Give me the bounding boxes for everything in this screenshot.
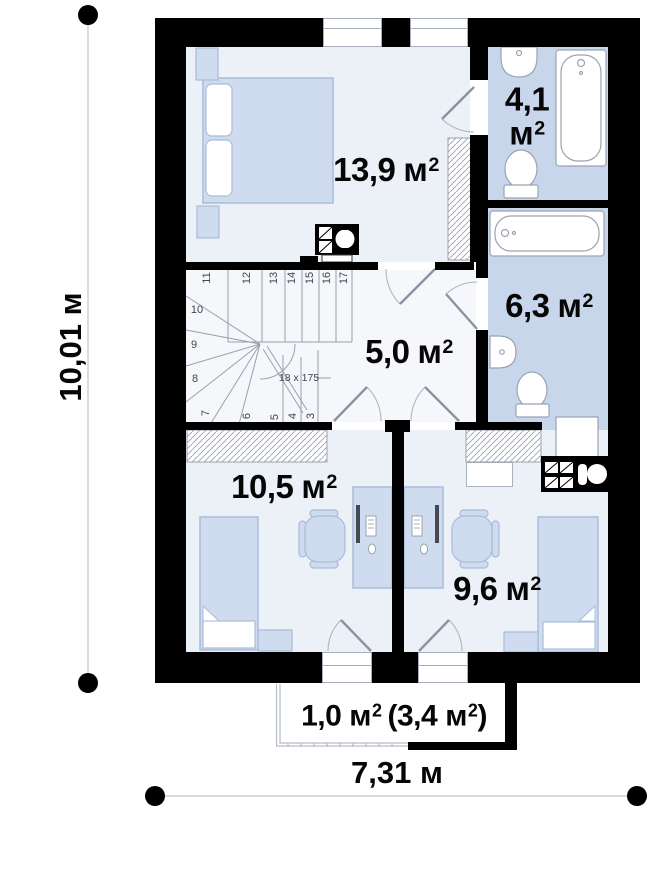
stair-step-number: 15 bbox=[304, 272, 316, 284]
wall bbox=[155, 18, 186, 683]
balcony-area-label: 1,0м2(3,4м2) bbox=[301, 702, 487, 733]
room-area-label-bath-top: 4,1 м2 bbox=[505, 82, 549, 149]
stair-step-number: 6 bbox=[241, 413, 253, 419]
stair-step-number: 13 bbox=[268, 272, 280, 284]
stair-step-number: 7 bbox=[200, 410, 212, 416]
stair-step-number: 9 bbox=[191, 339, 197, 351]
wall bbox=[476, 262, 488, 278]
wall bbox=[300, 256, 318, 270]
window bbox=[323, 18, 382, 47]
stair-step-number: 14 bbox=[286, 272, 298, 284]
wall bbox=[455, 422, 542, 430]
wall bbox=[608, 18, 640, 683]
shelf-box bbox=[466, 462, 513, 487]
dimension-dot bbox=[78, 5, 98, 25]
height-dimension-label: 10,01 м bbox=[53, 292, 89, 401]
room-area-label-hall: 5,0м2 bbox=[365, 335, 453, 369]
balcony-door-frame bbox=[418, 652, 468, 683]
wall bbox=[382, 18, 410, 47]
wall bbox=[392, 430, 404, 652]
dimension-dot bbox=[145, 786, 165, 806]
stair-step-number: 5 bbox=[269, 414, 281, 420]
room-left-floor bbox=[186, 430, 392, 652]
room-area-label-bath-mid: 6,3м2 bbox=[505, 289, 593, 323]
wall bbox=[155, 652, 322, 683]
wall bbox=[435, 262, 474, 270]
wall bbox=[476, 330, 488, 430]
balcony-door-frame bbox=[322, 652, 372, 683]
room-area-label-room-right: 9,6м2 bbox=[453, 572, 541, 606]
stair-step-number: 12 bbox=[241, 272, 253, 284]
wall bbox=[186, 262, 302, 270]
dimension-dot bbox=[627, 786, 647, 806]
wall bbox=[318, 262, 378, 270]
stair-step-number: 8 bbox=[192, 373, 198, 385]
room-area-label-room-left: 10,5м2 bbox=[231, 470, 337, 504]
wall bbox=[470, 47, 488, 80]
window bbox=[410, 18, 468, 47]
wall bbox=[488, 200, 608, 208]
dimension-dot bbox=[78, 673, 98, 693]
stair-step-number: 17 bbox=[338, 272, 350, 284]
floor-plan: 13,9м2 4,1 м2 6,3м2 5,0м2 10,5м2 9,6м2 1… bbox=[0, 0, 655, 882]
wall bbox=[372, 652, 418, 683]
room-area-label-bedroom: 13,9м2 bbox=[333, 153, 439, 187]
stair-annotation: 18 x 175 bbox=[279, 372, 319, 384]
wall bbox=[468, 652, 640, 683]
wall bbox=[470, 135, 488, 262]
wall bbox=[505, 683, 517, 750]
stair-step-number: 10 bbox=[191, 304, 203, 316]
wall bbox=[186, 422, 332, 430]
stair-step-number: 16 bbox=[321, 272, 333, 284]
stair-step-number: 3 bbox=[305, 413, 317, 419]
wall bbox=[408, 742, 517, 750]
width-dimension-label: 7,31 м bbox=[351, 755, 443, 791]
stair-step-number: 4 bbox=[287, 413, 299, 419]
stair-step-number: 11 bbox=[201, 272, 213, 283]
